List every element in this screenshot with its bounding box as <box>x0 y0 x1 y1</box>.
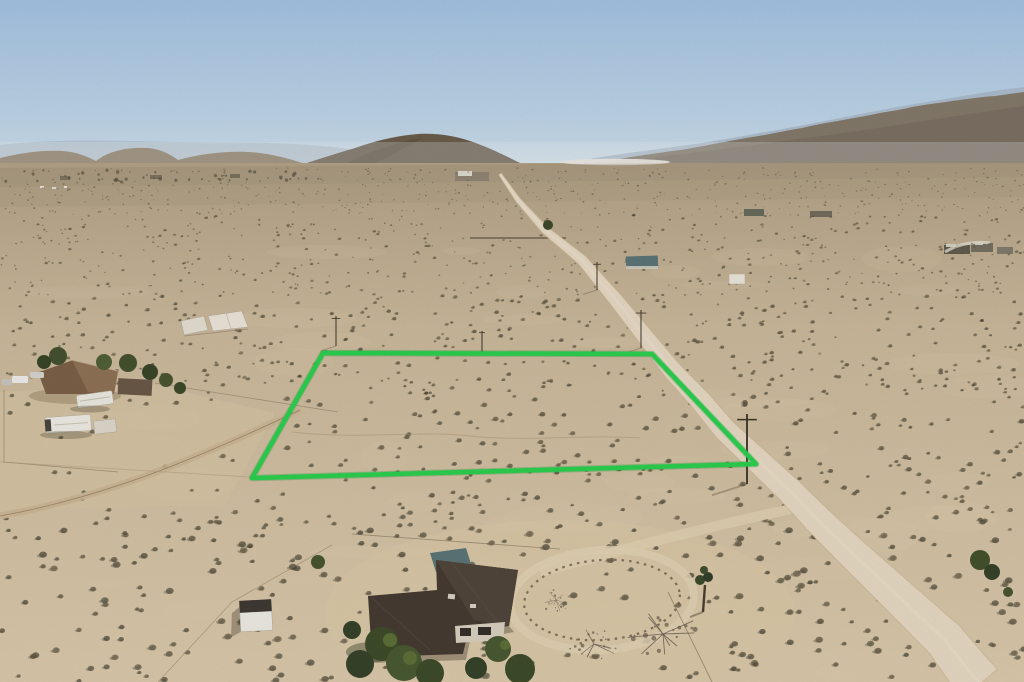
desert-scene <box>0 0 1024 682</box>
photo-grain <box>0 0 1024 682</box>
aerial-photo <box>0 0 1024 682</box>
